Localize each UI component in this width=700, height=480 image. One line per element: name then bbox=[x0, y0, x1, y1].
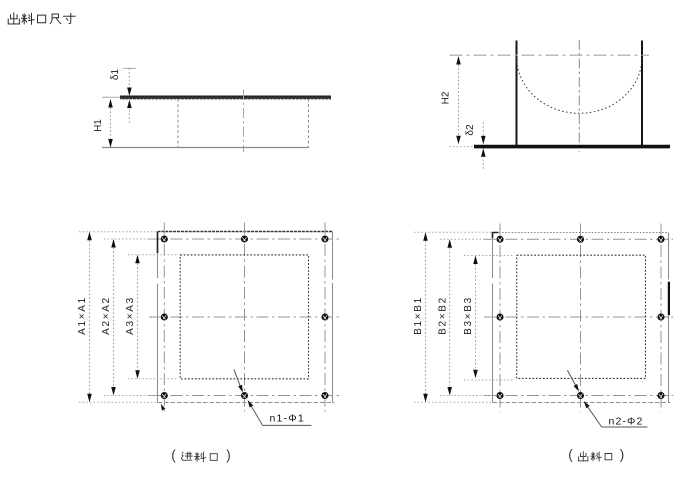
svg-text:δ2: δ2 bbox=[465, 124, 476, 136]
svg-text:B3×B3: B3×B3 bbox=[463, 296, 474, 335]
svg-text:A2×A2: A2×A2 bbox=[101, 296, 112, 335]
svg-text:B2×B2: B2×B2 bbox=[438, 296, 449, 335]
svg-text:n1-Φ1: n1-Φ1 bbox=[270, 413, 305, 425]
svg-text:(: ( bbox=[568, 447, 573, 462]
svg-text:): ) bbox=[620, 447, 625, 462]
svg-text:A1×A1: A1×A1 bbox=[77, 296, 88, 335]
svg-text:): ) bbox=[226, 447, 231, 462]
svg-text:(: ( bbox=[171, 447, 176, 462]
svg-text:H2: H2 bbox=[441, 91, 452, 104]
svg-text:H1: H1 bbox=[93, 119, 104, 132]
svg-text:δ1: δ1 bbox=[110, 69, 121, 81]
svg-text:A3×A3: A3×A3 bbox=[125, 296, 136, 335]
svg-text:n2-Φ2: n2-Φ2 bbox=[609, 416, 644, 428]
svg-text:B1×B1: B1×B1 bbox=[413, 296, 424, 335]
